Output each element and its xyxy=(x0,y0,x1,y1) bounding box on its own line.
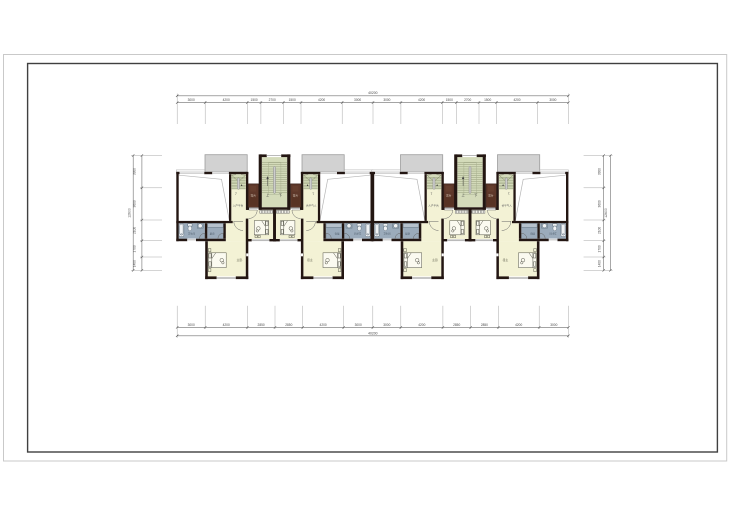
svg-text:3000: 3000 xyxy=(549,98,556,102)
svg-text:3000: 3000 xyxy=(188,323,195,327)
svg-text:1500: 1500 xyxy=(484,98,491,102)
svg-text:2700: 2700 xyxy=(464,98,471,102)
svg-text:3000: 3000 xyxy=(550,323,557,327)
svg-text:12600: 12600 xyxy=(604,208,608,218)
svg-text:3000: 3000 xyxy=(383,323,390,327)
svg-text:1400: 1400 xyxy=(598,260,602,267)
svg-text:4200: 4200 xyxy=(418,98,425,102)
svg-text:4200: 4200 xyxy=(513,98,520,102)
svg-text:40200: 40200 xyxy=(368,331,378,335)
svg-text:3000: 3000 xyxy=(354,98,361,102)
svg-text:2850: 2850 xyxy=(453,323,460,327)
svg-text:2700: 2700 xyxy=(269,98,276,102)
svg-text:4200: 4200 xyxy=(223,98,230,102)
svg-text:2850: 2850 xyxy=(258,323,265,327)
svg-text:12600: 12600 xyxy=(127,208,131,218)
svg-text:1500: 1500 xyxy=(446,98,453,102)
svg-text:1500: 1500 xyxy=(251,98,258,102)
svg-text:4200: 4200 xyxy=(223,323,230,327)
svg-text:4200: 4200 xyxy=(418,323,425,327)
svg-text:3300: 3300 xyxy=(598,168,602,175)
svg-text:3000: 3000 xyxy=(355,323,362,327)
svg-text:1700: 1700 xyxy=(133,245,137,252)
svg-text:3000: 3000 xyxy=(383,98,390,102)
svg-text:3600: 3600 xyxy=(133,200,137,207)
svg-text:3300: 3300 xyxy=(133,168,137,175)
svg-text:2100: 2100 xyxy=(598,227,602,234)
svg-text:1400: 1400 xyxy=(133,260,137,267)
svg-text:4200: 4200 xyxy=(318,98,325,102)
svg-text:2850: 2850 xyxy=(481,323,488,327)
svg-text:3600: 3600 xyxy=(598,200,602,207)
svg-text:4200: 4200 xyxy=(320,323,327,327)
svg-text:4200: 4200 xyxy=(515,323,522,327)
svg-text:2850: 2850 xyxy=(285,323,292,327)
svg-text:1500: 1500 xyxy=(289,98,296,102)
svg-text:2100: 2100 xyxy=(133,227,137,234)
svg-text:40200: 40200 xyxy=(368,91,378,95)
svg-text:3000: 3000 xyxy=(188,98,195,102)
svg-text:1700: 1700 xyxy=(598,245,602,252)
